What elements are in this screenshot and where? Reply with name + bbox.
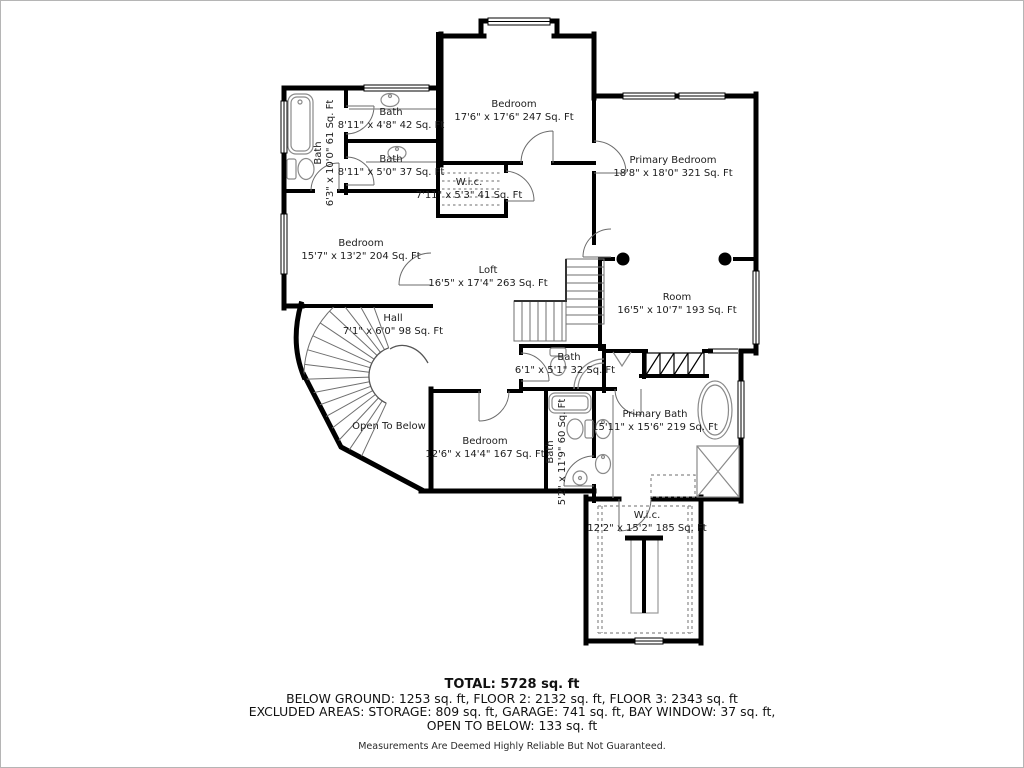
dims-bedroom-bottom: 12'6" x 14'4" 167 Sq. Ft [425,449,544,460]
dims-wic-lower: 12'2" x 15'2" 185 Sq. Ft [587,523,706,534]
label-bath-top-b: Bath [379,154,402,165]
label-wic-lower: W.i.c. [634,510,661,521]
dims-bath-top-b: 8'11" x 5'0" 37 Sq. Ft [338,167,445,178]
dims-primary-bath: 15'11" x 15'6" 219 Sq. Ft [592,422,718,433]
column-left [617,253,630,266]
label-primary-bath: Primary Bath [622,409,687,420]
floor-plan-page: Bath 6'3" x 10'0" 61 Sq. Ft Bath 8'11" x… [0,0,1024,768]
label-wic-top: W.i.c. [456,177,483,188]
curved-staircase [304,287,389,462]
label-bath-top-a: Bath [379,107,402,118]
floor-areas: BELOW GROUND: 1253 sq. ft, FLOOR 2: 2132… [1,692,1023,705]
dims-bath-lower: 5'2" x 11'9" 60 Sq. Ft [557,399,568,506]
total-area: TOTAL: 5728 sq. ft [1,678,1023,692]
curved-staircase-railing [369,345,428,403]
columns [617,253,732,266]
toilet-top-left [287,159,296,179]
dims-bath-top-a: 8'11" x 4'8" 42 Sq. Ft [338,120,445,131]
label-hall: Hall [383,313,402,324]
stairs-down-hatched [646,353,704,375]
dims-bedroom-top: 17'6" x 17'6" 247 Sq. Ft [454,112,573,123]
label-open-to-below: Open To Below [352,421,426,432]
sink-bath-top-a [381,94,399,107]
door-bedroom-bottom [479,391,509,421]
dims-primary-bedroom: 18'8" x 18'0" 321 Sq. Ft [613,168,732,179]
area-summary: TOTAL: 5728 sq. ft BELOW GROUND: 1253 sq… [1,678,1023,752]
sink-primary-2 [596,455,611,474]
label-bedroom-top: Bedroom [491,99,536,110]
dims-room: 16'5" x 10'7" 193 Sq. Ft [617,305,736,316]
label-bedroom-bottom: Bedroom [462,436,507,447]
label-loft: Loft [479,265,498,276]
label-bath-lower: Bath [545,440,556,463]
sink-bath-lower [573,471,587,485]
dims-bath-center: 6'1" x 5'1" 32 Sq. Ft [515,365,615,376]
label-room: Room [663,292,691,303]
label-bath-tl: Bath [313,141,324,164]
excluded-areas-line1: EXCLUDED AREAS: STORAGE: 809 sq. ft, GAR… [1,705,1023,718]
door-loft [583,229,611,257]
bench-primary [651,475,695,497]
door-bedroom-top [521,131,553,163]
disclaimer-text: Measurements Are Deemed Highly Reliable … [1,741,1023,752]
label-bedroom-left: Bedroom [338,238,383,249]
floor-plan-drawing: Bath 6'3" x 10'0" 61 Sq. Ft Bath 8'11" x… [1,1,1024,768]
dims-bedroom-left: 15'7" x 13'2" 204 Sq. Ft [301,251,420,262]
excluded-areas-line2: OPEN TO BELOW: 133 sq. ft [1,719,1023,732]
label-bath-center: Bath [557,352,580,363]
bathtub-top-left [288,94,313,154]
linen-marker [613,352,631,366]
dims-bath-tl: 6'3" x 10'0" 61 Sq. Ft [325,100,336,207]
dims-wic-top: 7'11" x 5'3" 41 Sq. Ft [416,190,523,201]
dims-loft: 16'5" x 17'4" 263 Sq. Ft [428,278,547,289]
column-right [719,253,732,266]
loft-staircase [514,259,604,341]
dims-hall: 7'1" x 6'0" 98 Sq. Ft [343,326,443,337]
label-primary-bedroom: Primary Bedroom [629,155,716,166]
